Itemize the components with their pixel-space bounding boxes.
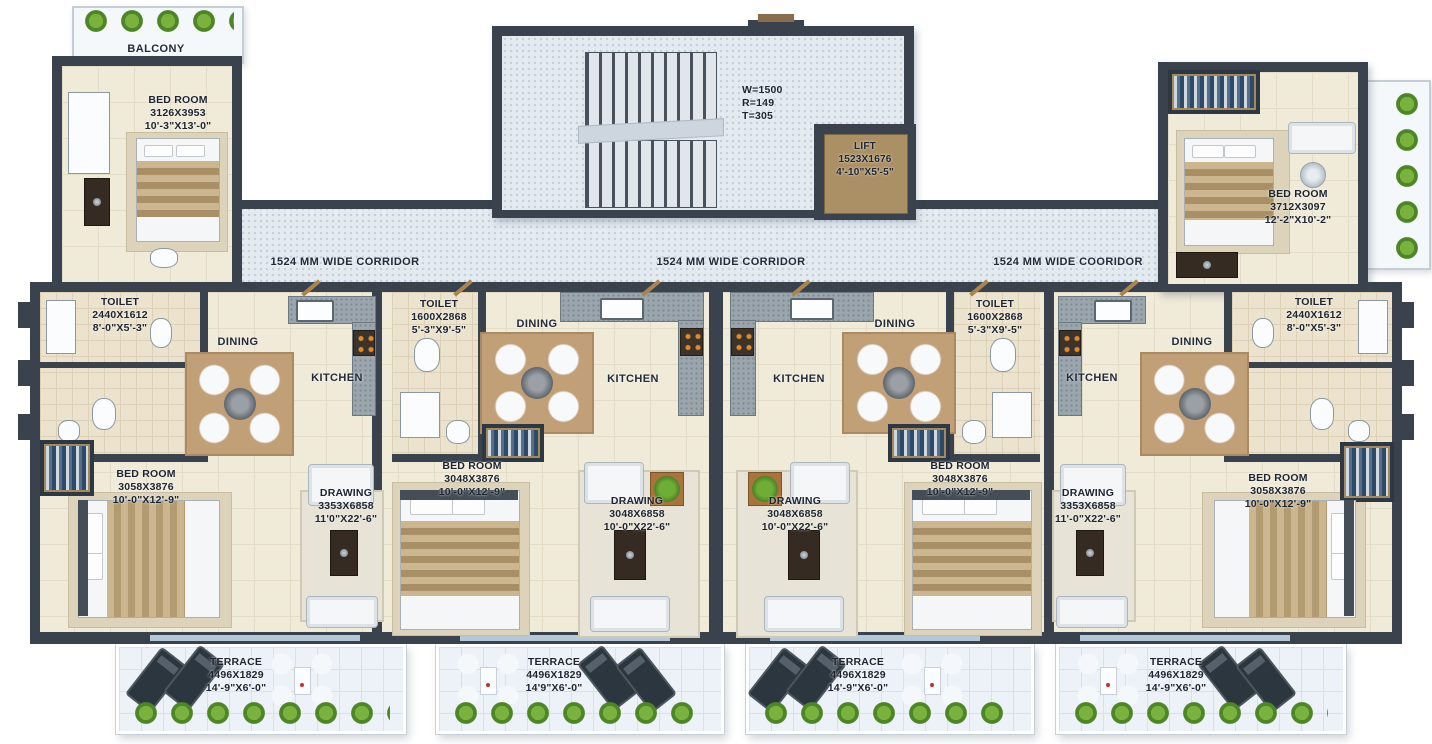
unit-wall-2-3: [709, 292, 723, 640]
bed: [136, 138, 220, 242]
unit3-bedroom-label: BED ROOM 3048X3876 10'-0"X12'-9": [890, 460, 1030, 499]
terrace-1-label: TERRACE 4496X1829 14'-9"X6'-0": [190, 656, 282, 695]
unit4-drawing-label: DRAWING 3353X6858 11'-0"X22'-6": [1034, 487, 1142, 526]
tv-unit: [1176, 252, 1238, 278]
tv-unit: [330, 530, 358, 576]
kitchen-sink-icon: [600, 298, 644, 320]
unit3-toilet-label: TOILET 1600X2868 5'-3"X9'-5": [950, 298, 1040, 337]
unit4-bed: [1214, 500, 1356, 618]
ceiling-fan-icon: [1300, 162, 1326, 188]
wall-stub: [1400, 414, 1414, 440]
kitchen-sink-icon: [296, 300, 334, 322]
unit2-toilet-label: TOILET 1600X2868 5'-3"X9'-5": [394, 298, 484, 337]
corridor-floor: [228, 206, 1168, 290]
terrace-3-label: TERRACE 4496X1829 14'-9"X6'-0": [812, 656, 904, 695]
plant-row-icon: [78, 6, 234, 34]
unit3-drawing-label: DRAWING 3048X6858 10'-0"X22'-6": [736, 495, 854, 534]
unit3-kitchen-label: KITCHEN: [762, 372, 836, 386]
unit4-dining-set: [1140, 352, 1249, 456]
lift-label: LIFT 1523X1676 4'-10"X5'-5": [820, 140, 910, 179]
plant-row-icon: [1068, 698, 1328, 726]
unit1-bedroom-label: BED ROOM 3058X3876 10'-0"X12'-9": [80, 468, 212, 507]
sofa: [764, 596, 844, 632]
corridor-label-center: 1524 MM WIDE CORRIDOR: [630, 255, 832, 269]
wardrobe: [1340, 442, 1394, 502]
bedroom-top-right-label: BED ROOM 3712X3097 12'-2"X10'-2": [1232, 188, 1364, 227]
unit4-kitchen-label: KITCHEN: [1052, 371, 1132, 385]
terrace-door-glass: [150, 635, 360, 641]
unit2-dining-set: [480, 332, 594, 434]
corridor-top-wall-right: [910, 200, 1164, 209]
outer-wall-left: [30, 282, 40, 642]
plant-column-icon: [1392, 86, 1424, 260]
tv-unit: [614, 530, 646, 580]
sofa: [1056, 596, 1128, 628]
toilet-icon: [414, 338, 440, 372]
sink-icon: [150, 248, 178, 268]
toilet-icon: [1310, 398, 1334, 430]
unit1-kitchen-label: KITCHEN: [298, 371, 376, 385]
bed-headboard: [78, 500, 88, 616]
wardrobe: [482, 424, 544, 462]
wardrobe: [888, 424, 950, 462]
stove-icon: [1059, 330, 1081, 356]
corridor-label-left: 1524 MM WIDE CORRIDOR: [245, 255, 445, 269]
wall-stub: [1400, 360, 1414, 386]
tv-unit: [84, 178, 110, 226]
unit1-toilet-label: TOILET 2440X1612 8'-0"X5'-3": [58, 296, 182, 335]
kitchen-sink-icon: [790, 298, 834, 320]
unit1-dining-set: [185, 352, 294, 456]
plant-row-icon: [128, 698, 390, 726]
stove-icon: [353, 330, 375, 356]
stairs-upper-flight: [585, 52, 717, 128]
washbasin-icon: [446, 420, 470, 444]
bedroom-top-left-label: BED ROOM 3126X3953 10'-3"X13'-0": [108, 94, 248, 133]
stove-icon: [731, 328, 754, 356]
washbasin-icon: [962, 420, 986, 444]
washbasin-icon: [1348, 420, 1370, 442]
wardrobe: [1168, 70, 1260, 114]
sofa: [1288, 122, 1356, 154]
shower-icon: [400, 392, 440, 438]
sofa: [306, 596, 378, 628]
unit3-dining-set: [842, 332, 956, 434]
unit3-dining-label: DINING: [860, 317, 930, 331]
plant-row-icon: [758, 698, 1016, 726]
unit2-dining-label: DINING: [502, 317, 572, 331]
unit1-dining-label: DINING: [196, 335, 280, 349]
plant-row-icon: [448, 698, 706, 726]
tv-unit: [788, 530, 820, 580]
terrace-4-label: TERRACE 4496X1829 14'-9"X6'-0": [1130, 656, 1222, 695]
stairs-lower-flight: [585, 140, 717, 208]
unit1-drawing-label: DRAWING 3353X6858 11'0"X22'-6": [292, 487, 400, 526]
stove-icon: [680, 328, 703, 356]
wall-stub: [18, 360, 32, 386]
kitchen-sink-icon: [1094, 300, 1132, 322]
corridor-label-right: 1524 MM WIDE COORIDOR: [965, 255, 1171, 269]
unit1-bed: [78, 500, 220, 618]
tv-unit: [1076, 530, 1104, 576]
sofa: [590, 596, 670, 632]
shower-icon: [992, 392, 1032, 438]
wall-stub: [18, 302, 32, 328]
unit2-bed: [400, 490, 520, 630]
wall-stub: [1400, 302, 1414, 328]
corridor-top-wall-left: [238, 200, 496, 209]
unit2-kitchen-label: KITCHEN: [596, 372, 670, 386]
toilet-icon: [92, 398, 116, 430]
unit4-toilet-partition: [1232, 362, 1392, 368]
wardrobe-white: [68, 92, 110, 174]
terrace-door-glass: [1080, 635, 1290, 641]
washbasin-icon: [58, 420, 80, 442]
unit1-toilet-partition: [40, 362, 200, 368]
terrace-2-label: TERRACE 4496X1829 14'9"X6'-0": [508, 656, 600, 695]
bed-headboard: [1344, 500, 1354, 616]
stair-info-label: W=1500 R=149 T=305: [742, 84, 822, 123]
unit4-toilet-label: TOILET 2440X1612 8'-0"X5'-3": [1252, 296, 1376, 335]
unit2-bedroom-label: BED ROOM 3048X3876 10'-0"X12'-9": [402, 460, 542, 499]
toilet-icon: [990, 338, 1016, 372]
floor-plan: BALCONY BED ROOM 3126X3953 10'-3"X13'-0"…: [0, 0, 1432, 744]
stair-door-lintel: [758, 14, 794, 22]
unit3-bed: [912, 490, 1032, 630]
unit4-dining-label: DINING: [1150, 335, 1234, 349]
unit4-bedroom-label: BED ROOM 3058X3876 10'-0"X12'-9": [1212, 472, 1344, 511]
balcony-label: BALCONY: [72, 42, 240, 56]
wall-stub: [18, 414, 32, 440]
unit2-drawing-label: DRAWING 3048X6858 10'-0"X22'-6": [578, 495, 696, 534]
